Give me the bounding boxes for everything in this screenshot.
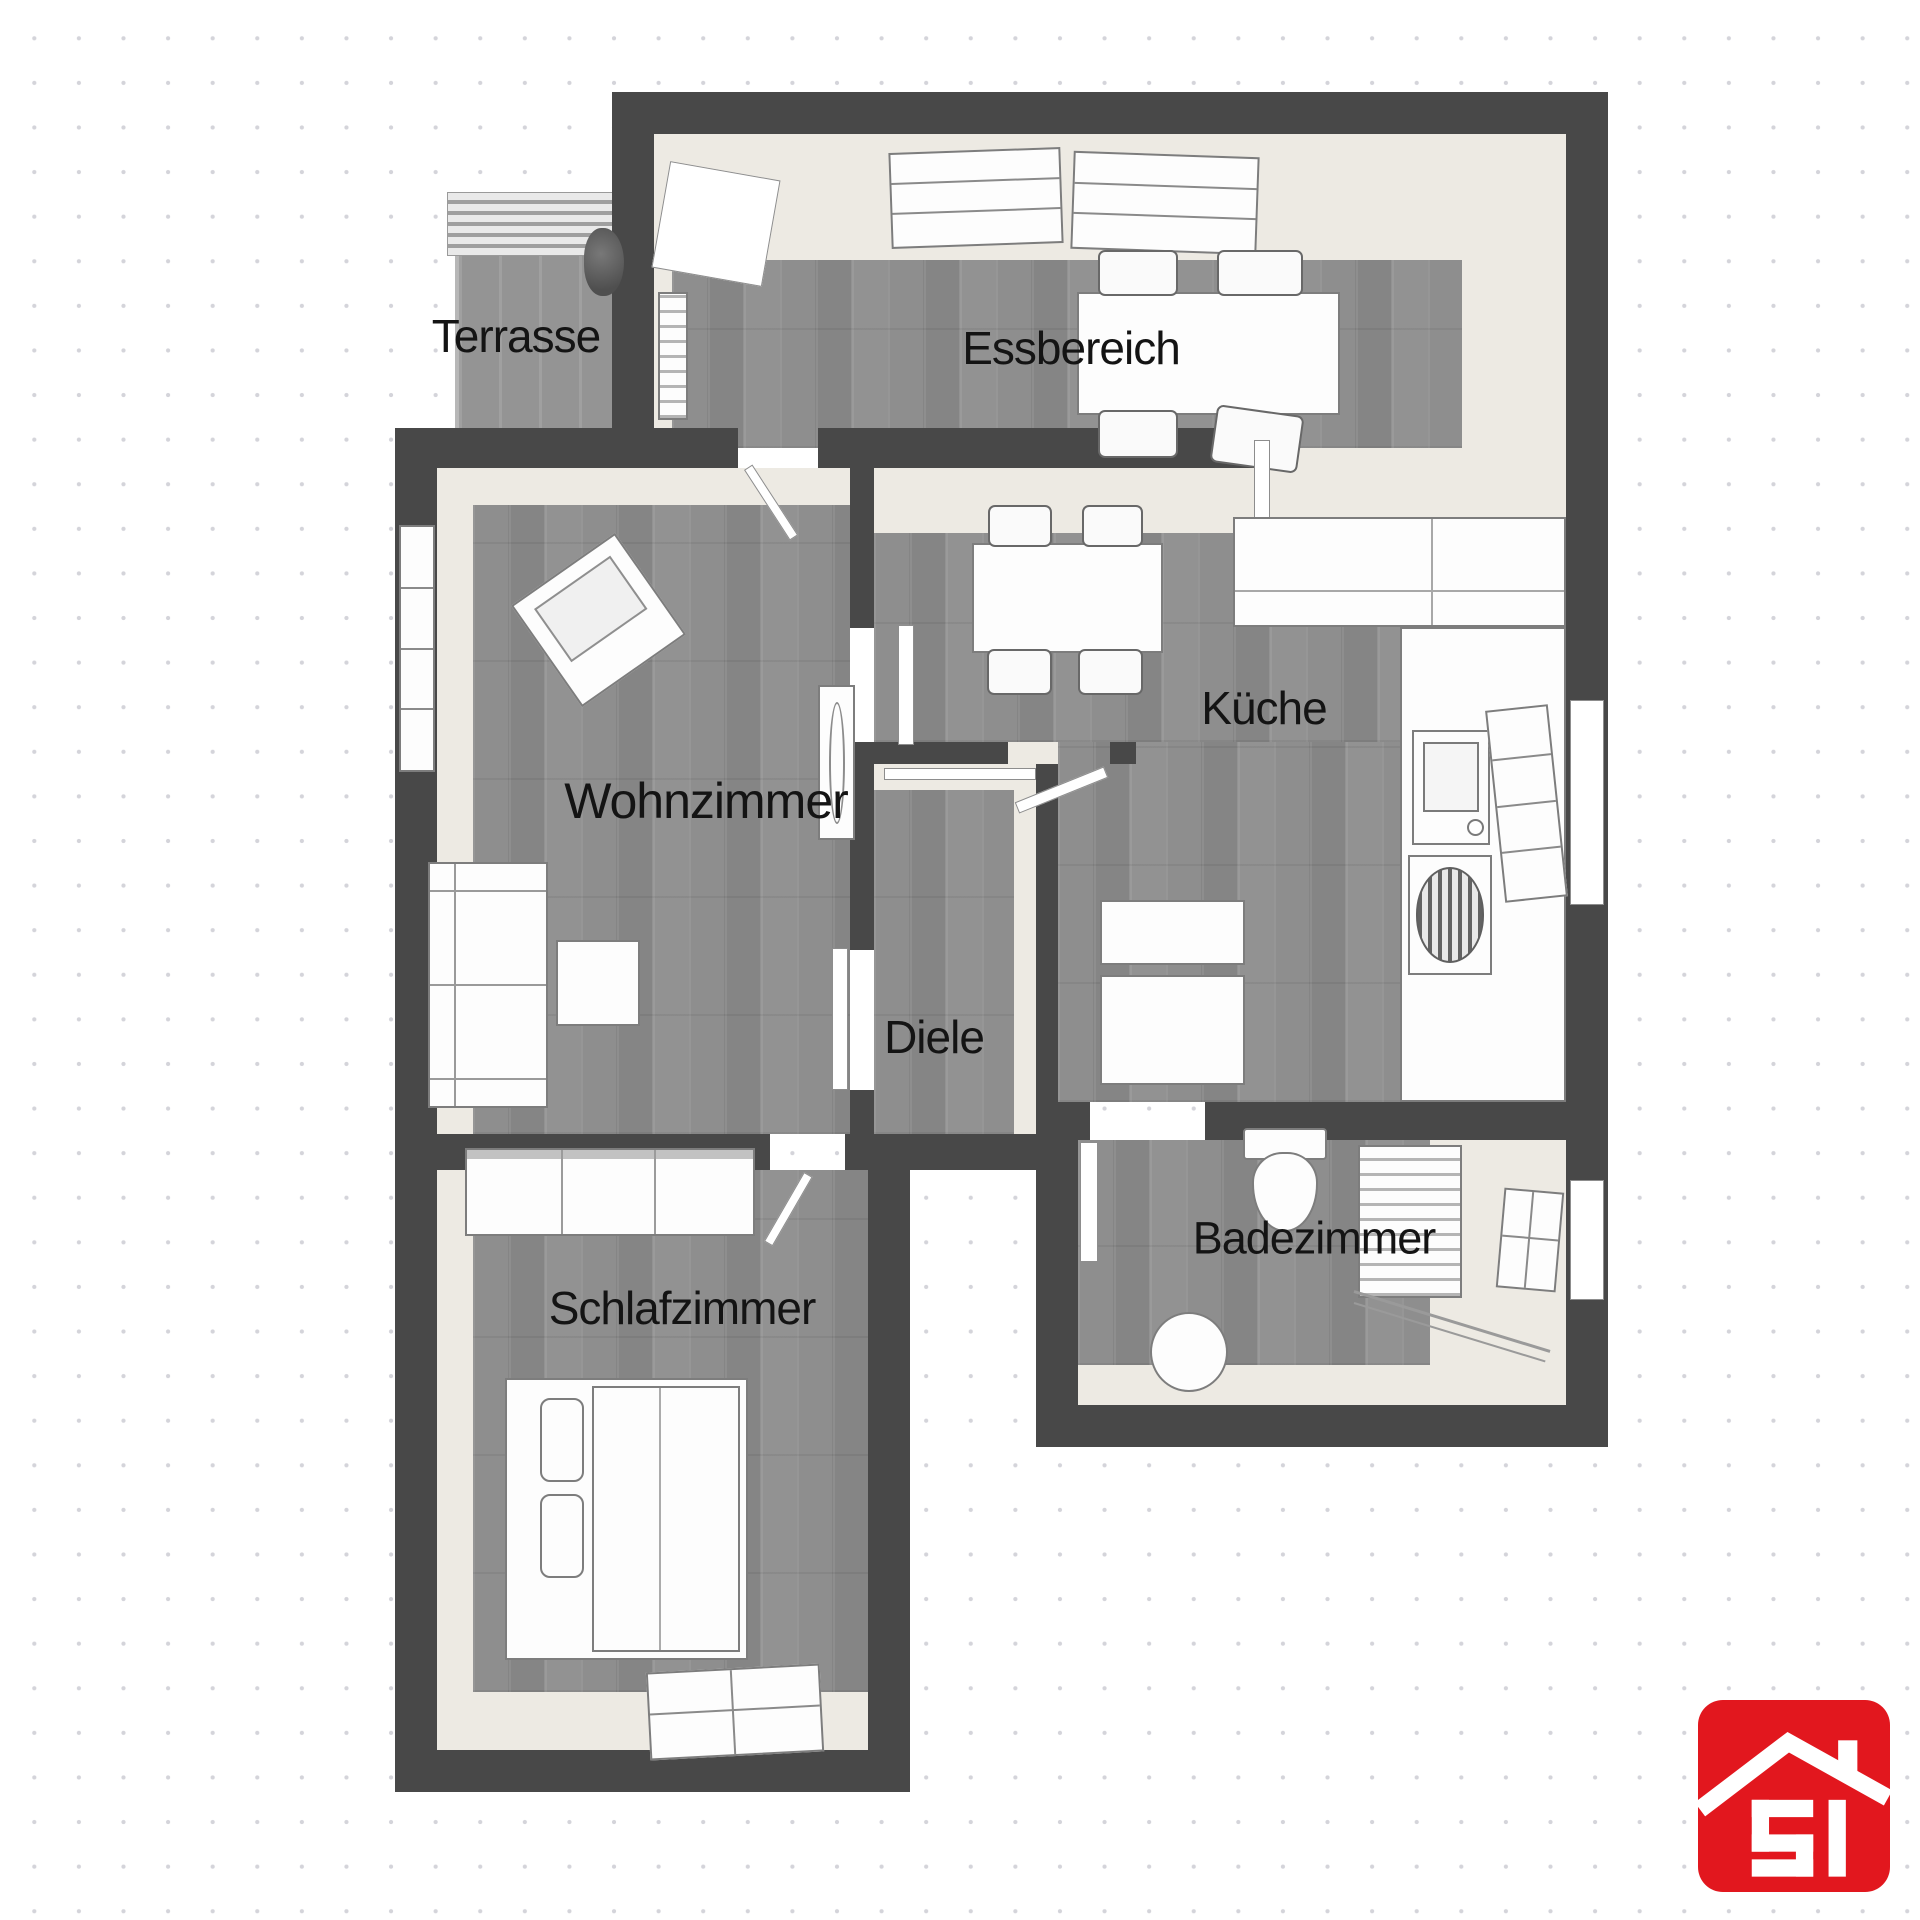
window — [1070, 151, 1259, 255]
window-frame — [1570, 700, 1604, 905]
room-label-schlafzimmer: Schlafzimmer — [549, 1284, 816, 1332]
wall-top — [612, 92, 1608, 134]
wall-badezimmer-left — [1036, 1134, 1078, 1447]
si-logo: SI — [1698, 1700, 1890, 1892]
chair — [1078, 649, 1143, 695]
si-logo-icon — [1698, 1700, 1890, 1892]
wall-diele-right — [1036, 764, 1058, 1134]
chair — [1082, 505, 1143, 547]
wall-divider-c — [850, 1090, 874, 1134]
wall-diele-top-b — [1110, 742, 1136, 764]
room-label-badezimmer: Badezimmer — [1193, 1214, 1436, 1261]
wall-mid-horizontal-a — [395, 428, 738, 468]
wall-mid-horizontal-b — [818, 428, 1262, 468]
kitchen-upper-counter — [1233, 517, 1566, 627]
chair — [987, 649, 1052, 695]
door-leaf — [1080, 1142, 1098, 1262]
pillow — [540, 1494, 584, 1578]
window — [888, 147, 1063, 249]
chair — [1098, 250, 1178, 296]
window — [399, 525, 435, 772]
kitchen-sink — [1412, 730, 1490, 845]
kitchen-table — [972, 543, 1163, 653]
wall-badezimmer-top-a — [1058, 1102, 1090, 1140]
fridge-unit — [1100, 900, 1245, 965]
chair — [1217, 250, 1303, 296]
room-label-terrasse: Terrasse — [432, 312, 600, 360]
washbasin — [1150, 1312, 1228, 1392]
wall-schlafzimmer-right — [868, 1170, 910, 1792]
coffee-table — [556, 940, 640, 1026]
diele-floor — [874, 790, 1014, 1134]
radiator — [658, 292, 688, 420]
window-frame — [1570, 1180, 1604, 1300]
door-frame — [884, 768, 1036, 780]
pillow — [540, 1398, 584, 1482]
door-post — [1254, 440, 1270, 518]
room-label-diele: Diele — [884, 1013, 984, 1061]
window — [646, 1664, 824, 1761]
window-leaf — [1496, 1188, 1564, 1293]
room-label-kueche: Küche — [1201, 684, 1326, 732]
wall-diele-top-a — [874, 742, 1008, 764]
stove — [1408, 855, 1492, 975]
room-label-wohnzimmer: Wohnzimmer — [564, 775, 848, 828]
terrace-door-leaf — [651, 161, 780, 287]
sofa — [428, 862, 548, 1108]
fridge-unit — [1100, 975, 1245, 1085]
blanket — [592, 1386, 740, 1652]
wall-badezimmer-bottom — [1036, 1405, 1608, 1447]
plant-icon — [584, 228, 624, 296]
chair — [988, 505, 1052, 547]
floor-plan: Terrasse Essbereich Wohnzimmer Küche Die… — [0, 0, 1920, 1920]
door-leaf — [832, 948, 848, 1090]
wardrobe — [465, 1148, 755, 1236]
wall-divider-a — [850, 468, 874, 628]
chair — [1098, 410, 1178, 458]
door-leaf — [898, 625, 914, 745]
wall-wohnzimmer-schlafzimmer-b — [845, 1134, 1058, 1170]
room-label-essbereich: Essbereich — [962, 324, 1180, 372]
